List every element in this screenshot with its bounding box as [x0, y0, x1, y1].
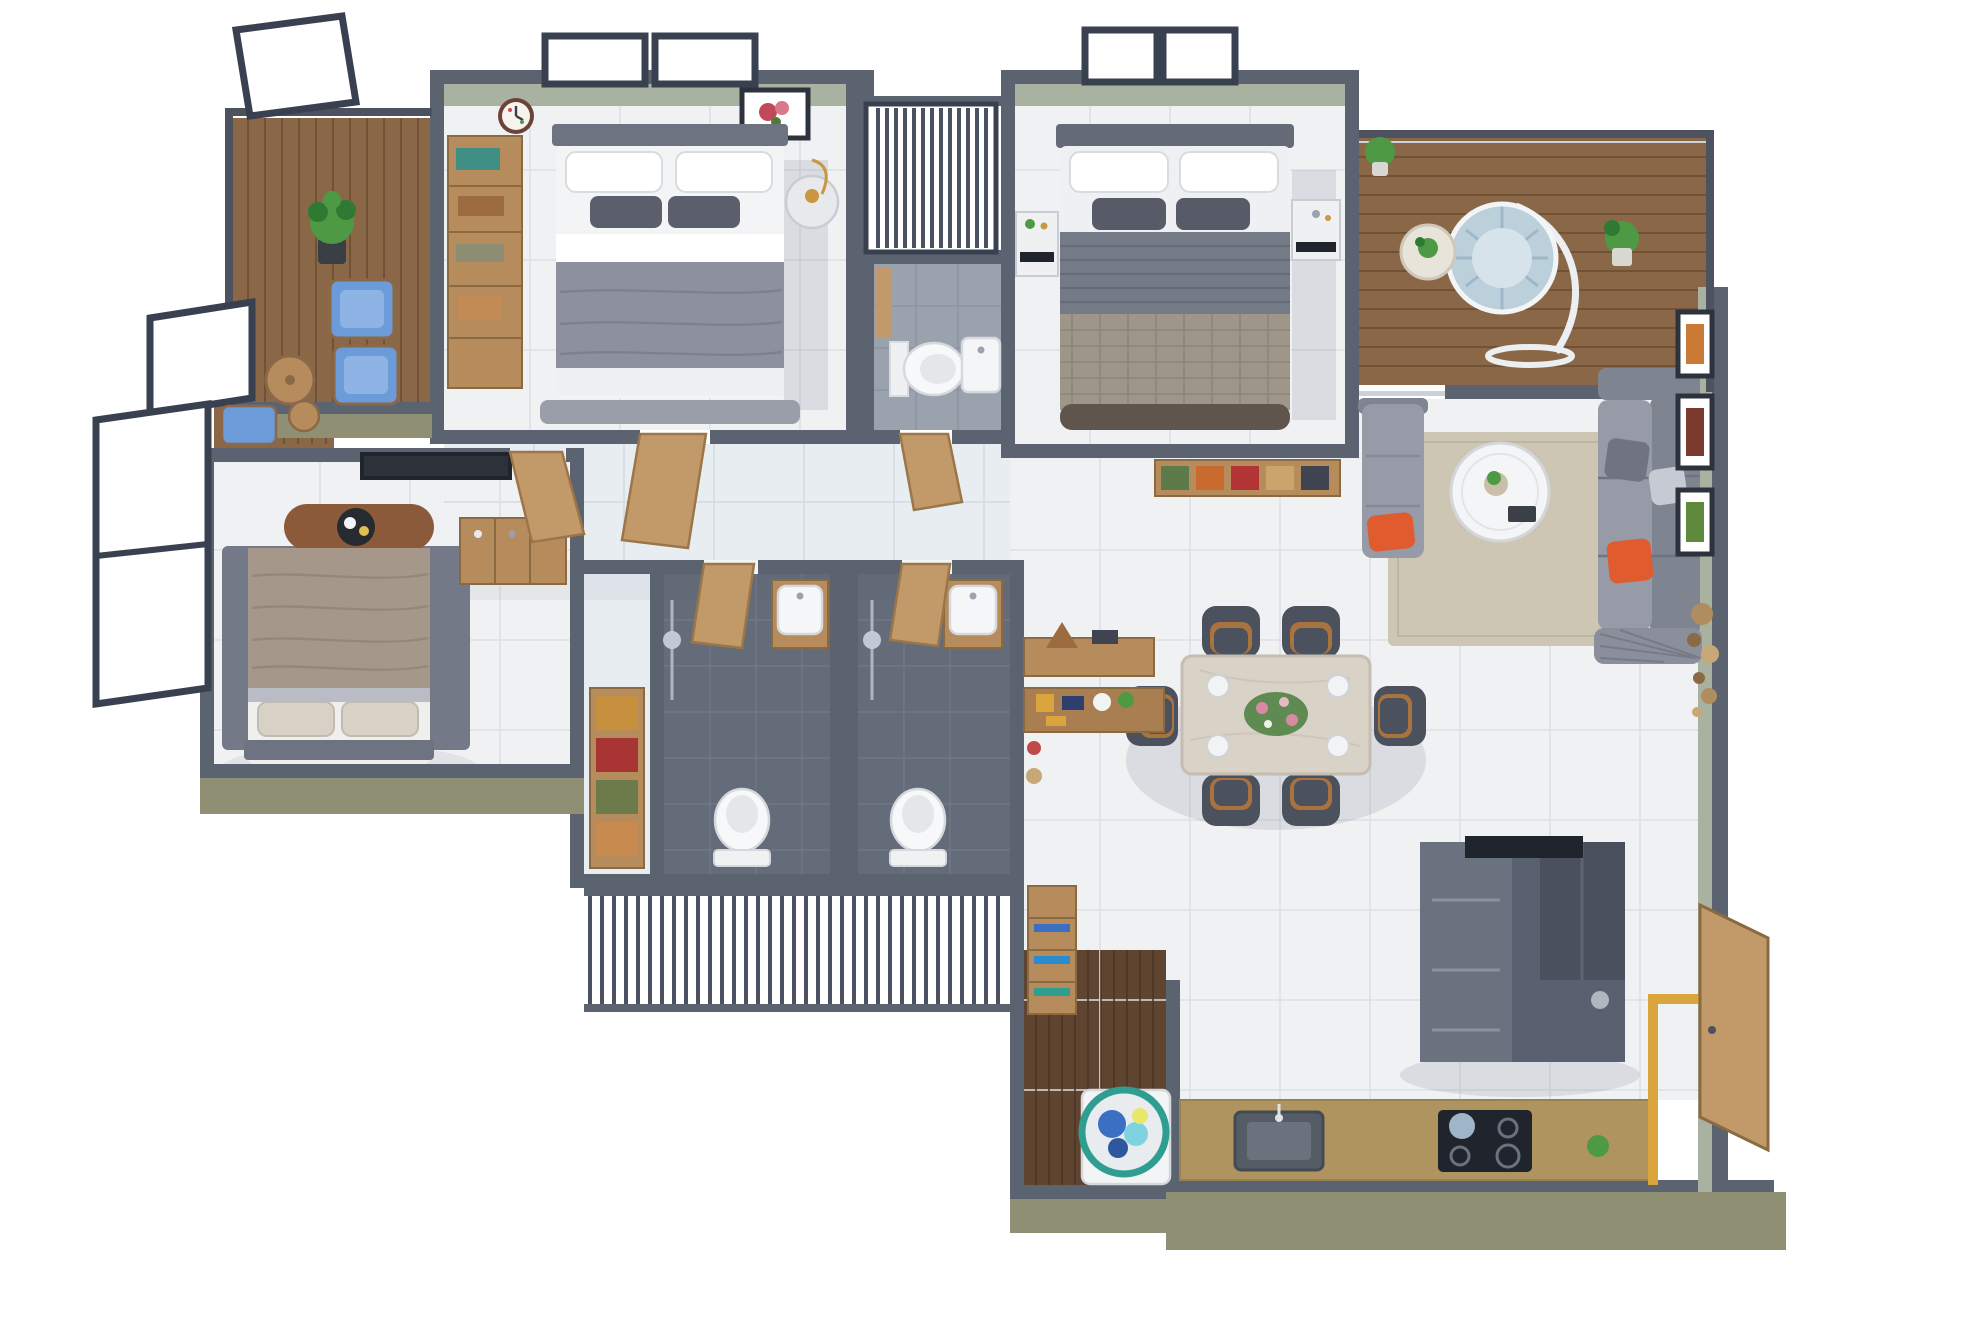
counter-plant: [1587, 1135, 1609, 1157]
dark-counter-panel: [1465, 836, 1583, 858]
blue-lounge-chair-2: [334, 346, 398, 404]
kettle: [1449, 1113, 1475, 1139]
plush-decor: [1026, 768, 1042, 784]
dining-chair: [1282, 774, 1340, 826]
nightstand-left: [1016, 212, 1058, 276]
dining-table: [1182, 656, 1370, 774]
bathroom-3-door: [890, 564, 950, 646]
shower-head: [663, 631, 681, 649]
balcony-1-round-table: [266, 356, 314, 404]
wardrobe: [448, 136, 522, 388]
door-handle: [1708, 1026, 1716, 1034]
kitchen-sink: [1235, 1104, 1323, 1170]
bedroom-2-windows: [1085, 30, 1235, 82]
towel-shelf: [590, 688, 644, 868]
door-frame-trim: [1648, 1000, 1658, 1185]
double-bed-bedroom-3: [244, 548, 434, 764]
vanity-right: [1292, 200, 1340, 260]
wash-basin: [962, 338, 1000, 392]
foot-bench-with-tray: [284, 504, 434, 550]
dining-chair: [1202, 774, 1260, 826]
kitchen-island-cabinets: [1420, 836, 1625, 1062]
double-bed-bedroom-2: [1056, 124, 1294, 430]
balcony-2-side-table: [1401, 225, 1455, 279]
balcony-1-glass-panel: [236, 16, 356, 116]
floor-plan-render: [0, 0, 1963, 1332]
shower-head: [863, 631, 881, 649]
blue-lounge-chair-1: [330, 280, 394, 338]
chaise-sofa: [1358, 398, 1428, 558]
louver-screen-bottom: [584, 888, 1010, 1012]
flower-centerpiece: [1244, 692, 1308, 736]
storage-cubbies: [1155, 460, 1340, 496]
wall-clock: [498, 98, 534, 134]
slat-bookshelf: [1028, 886, 1076, 1014]
dining-chair: [1282, 606, 1340, 658]
coffee-table: [1451, 443, 1549, 541]
bedroom-1-rug: [540, 400, 800, 424]
louver-screen-top: [866, 104, 996, 252]
round-stool: [289, 401, 319, 431]
dining-chair: [1374, 686, 1426, 746]
gas-hob: [1438, 1110, 1532, 1172]
laundry-basket: [1082, 1090, 1166, 1174]
dining-chair: [1202, 606, 1260, 658]
kitchen-counter: [1180, 1100, 1655, 1180]
bathroom-2-door: [692, 564, 754, 648]
double-bed-bedroom-1: [552, 124, 788, 398]
prep-sink: [1591, 991, 1609, 1009]
tv-panel: [360, 452, 512, 480]
red-flower-decor: [1027, 741, 1041, 755]
living-art-frames: [1678, 312, 1712, 554]
